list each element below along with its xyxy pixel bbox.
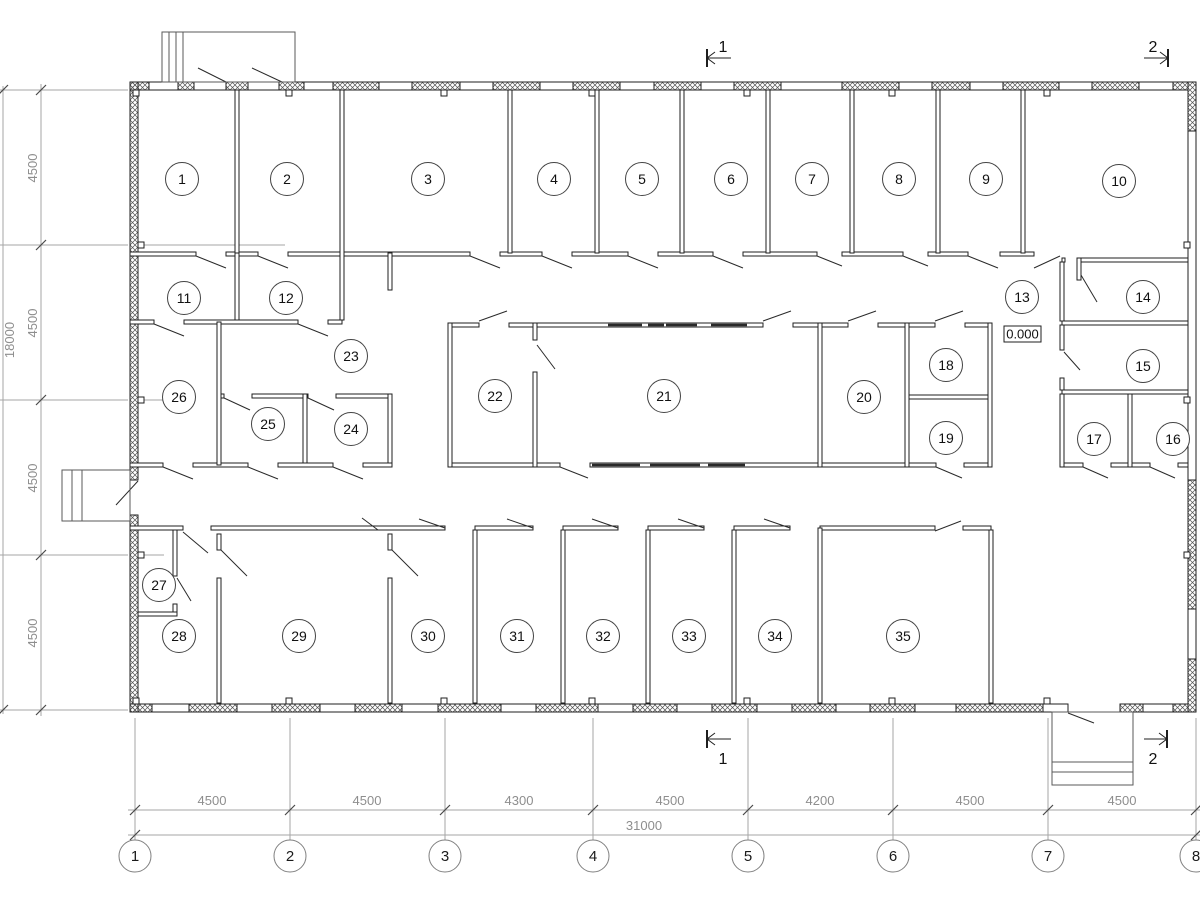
wall-segment: [235, 90, 239, 253]
wall-segment: [595, 90, 599, 253]
door-leaf: [221, 550, 247, 576]
exterior-wall-pier: [1188, 659, 1196, 712]
room-number: 21: [656, 388, 672, 404]
wall-segment: [130, 463, 163, 467]
door-leaf: [116, 481, 138, 505]
room-number: 17: [1086, 431, 1102, 447]
room-number: 25: [260, 416, 276, 432]
exterior-wall-pier: [355, 704, 402, 712]
door-leaf: [252, 68, 282, 82]
elevation-label: 0.000: [1006, 327, 1039, 342]
wall-segment: [1077, 258, 1081, 280]
exterior-wall-pier: [573, 82, 620, 90]
dimension-total-label: 31000: [626, 818, 662, 833]
door-leaf: [198, 68, 226, 82]
wall-segment: [450, 323, 479, 327]
dimension-label: 4300: [505, 793, 534, 808]
door-leaf: [183, 532, 208, 553]
door-leaf: [1068, 713, 1094, 723]
door-leaf: [1064, 352, 1080, 370]
door-leaf: [308, 398, 334, 410]
door-leaf: [903, 256, 928, 266]
wall-segment: [508, 90, 512, 253]
wall-segment: [646, 530, 650, 703]
wall-segment: [988, 323, 992, 467]
room-number: 29: [291, 628, 307, 644]
wall-segment: [964, 463, 990, 467]
room-number: 22: [487, 388, 503, 404]
section-number: 1: [719, 751, 728, 768]
wall-segment: [278, 463, 333, 467]
exterior-wall-pier: [1003, 82, 1059, 90]
exterior-wall-pier: [870, 704, 915, 712]
grid-intersection-marker: [1184, 397, 1190, 403]
door-leaf: [470, 256, 500, 268]
entrance-porch-top: [162, 32, 295, 82]
wall-segment: [658, 252, 713, 256]
exterior-wall-pier: [1120, 704, 1143, 712]
door-leaf: [935, 521, 961, 531]
exterior-wall-pier: [792, 704, 836, 712]
wall-segment: [500, 252, 542, 256]
exterior-wall-pier: [493, 82, 540, 90]
grid-intersection-marker: [1044, 90, 1050, 96]
door-leaf: [1034, 256, 1060, 268]
room-number: 23: [343, 348, 359, 364]
door-leaf: [763, 311, 791, 321]
grid-intersection-marker: [1044, 698, 1050, 704]
wall-segment: [217, 322, 221, 465]
wall-segment: [288, 252, 470, 256]
grid-intersection-marker: [889, 698, 895, 704]
wall-segment: [388, 578, 392, 703]
exterior-wall-pier: [536, 704, 598, 712]
room-number: 18: [938, 357, 954, 373]
door-leaf: [248, 467, 278, 479]
room-number: 6: [727, 171, 735, 187]
exterior-wall-pier: [842, 82, 899, 90]
dimension-label: 4500: [25, 464, 40, 493]
section-number: 2: [1149, 39, 1158, 56]
room-number: 20: [856, 389, 872, 405]
dimension-total-label: 18000: [2, 322, 17, 358]
wall-segment: [965, 323, 990, 327]
grid-bubble-number: 5: [744, 848, 752, 865]
door-leaf: [628, 256, 658, 268]
door-leaf: [163, 467, 193, 479]
exterior-wall-pier: [226, 82, 248, 90]
door-leaf: [479, 311, 507, 321]
room-number: 16: [1165, 431, 1181, 447]
room-number: 35: [895, 628, 911, 644]
exterior-wall-left-lower: [130, 515, 138, 712]
grid-intersection-marker: [441, 90, 447, 96]
grid-intersection-marker: [133, 698, 139, 704]
grid-intersection-marker: [589, 698, 595, 704]
section-number: 2: [1149, 751, 1158, 768]
exterior-wall-pier: [438, 704, 501, 712]
room-number: 33: [681, 628, 697, 644]
dimension-label: 4500: [25, 619, 40, 648]
wall-segment: [1000, 252, 1034, 256]
wall-segment: [1060, 394, 1064, 467]
door-leaf: [258, 256, 288, 268]
door-leaf: [936, 467, 962, 478]
grid-intersection-marker: [138, 397, 144, 403]
wall-segment: [211, 526, 445, 530]
grid-bubble-number: 7: [1044, 848, 1052, 865]
grid-intersection-marker: [744, 698, 750, 704]
dimension-label: 4500: [25, 154, 40, 183]
door-leaf: [542, 256, 572, 268]
grid-intersection-marker: [286, 90, 292, 96]
grid-intersection-marker: [138, 552, 144, 558]
exterior-wall-pier: [189, 704, 237, 712]
wall-segment: [928, 252, 968, 256]
room-number: 13: [1014, 289, 1030, 305]
wall-segment: [680, 90, 684, 253]
wall-segment: [766, 90, 770, 253]
wall-segment: [1021, 90, 1025, 253]
wall-segment: [235, 253, 239, 320]
exterior-wall-pier: [712, 704, 757, 712]
door-leaf: [1081, 275, 1097, 302]
grid-intersection-marker: [1184, 552, 1190, 558]
wall-segment: [563, 526, 618, 530]
dimension-label: 4500: [353, 793, 382, 808]
dimension-label: 4500: [956, 793, 985, 808]
door-leaf: [848, 311, 876, 321]
wall-segment: [226, 252, 258, 256]
dimension-label: 4200: [806, 793, 835, 808]
wall-segment: [818, 323, 822, 467]
door-leaf: [537, 345, 555, 369]
room-number: 15: [1135, 358, 1151, 374]
wall-segment: [475, 526, 533, 530]
wall-segment: [648, 526, 704, 530]
room-numbers: 1 2 3 4 5 6 7 8 9 10 11 12 13 14 15 16 1…: [143, 163, 1190, 653]
exterior-wall-pier: [333, 82, 379, 90]
wall-segment: [1062, 258, 1065, 262]
grid-intersection-marker: [889, 90, 895, 96]
wall-segment: [1060, 378, 1064, 390]
dimension-label: 4500: [198, 793, 227, 808]
wall-segment: [1060, 325, 1064, 350]
exterior-wall-pier: [279, 82, 304, 90]
wall-segment: [184, 320, 298, 324]
exterior-wall-bottom: [130, 704, 1068, 712]
wall-segment: [1062, 321, 1188, 325]
room-number: 19: [938, 430, 954, 446]
room-number: 34: [767, 628, 783, 644]
door-leaf: [560, 467, 588, 478]
room-number: 3: [424, 171, 432, 187]
exterior-wall-pier: [412, 82, 460, 90]
dimension-label: 4500: [25, 309, 40, 338]
grid-intersection-marker: [138, 242, 144, 248]
room-number: 12: [278, 290, 294, 306]
grid-intersection-marker: [286, 698, 292, 704]
grid-intersection-marker: [1184, 242, 1190, 248]
room-number: 4: [550, 171, 558, 187]
door-leaf: [1150, 467, 1175, 478]
door-leaf: [1083, 467, 1108, 478]
exterior-wall-pier: [1092, 82, 1139, 90]
door-leaf: [392, 550, 418, 576]
wall-segment: [533, 323, 537, 340]
grid-bubble-number: 2: [286, 848, 294, 865]
door-leaf: [817, 256, 842, 266]
room-number: 28: [171, 628, 187, 644]
exterior-wall-pier: [932, 82, 970, 90]
grid-bubble-number: 6: [889, 848, 897, 865]
room-number: 14: [1135, 289, 1151, 305]
wall-segment: [336, 394, 392, 398]
room-number: 5: [638, 171, 646, 187]
door-leaf: [196, 256, 226, 268]
wall-segment: [328, 320, 342, 324]
door-leaf: [154, 324, 184, 336]
wall-segment: [818, 528, 822, 703]
wall-segment: [1079, 258, 1188, 262]
room-number: 31: [509, 628, 525, 644]
door-leaf: [968, 256, 998, 268]
room-number: 2: [283, 171, 291, 187]
exterior-wall-pier: [1188, 82, 1196, 131]
floor-plan-drawing: 0.000 1 2 1 2 1 2 3 4 5 6 7 8 9 10 11 12…: [0, 0, 1200, 900]
wall-segment: [989, 530, 993, 703]
door-leaf: [713, 256, 743, 268]
room-number: 7: [808, 171, 816, 187]
wall-segment: [561, 530, 565, 703]
grid-axis-bubbles: 1 2 3 4 5 6 7 8: [119, 840, 1200, 872]
grid-intersection-marker: [133, 90, 139, 96]
exterior-wall-pier: [272, 704, 320, 712]
section-number: 1: [719, 39, 728, 56]
wall-segment: [388, 253, 392, 290]
wall-segment: [138, 612, 177, 616]
grid-bubble-number: 1: [131, 848, 139, 865]
wall-segment: [743, 252, 817, 256]
wall-segment: [173, 604, 177, 612]
room-number: 24: [343, 421, 359, 437]
room-number: 32: [595, 628, 611, 644]
dimension-label: 4500: [1108, 793, 1137, 808]
room-number: 8: [895, 171, 903, 187]
grid-bubble-number: 8: [1192, 848, 1200, 865]
wall-segment: [450, 463, 560, 467]
grid-bubble-number: 4: [589, 848, 597, 865]
wall-segment: [732, 530, 736, 703]
wall-segment: [1178, 463, 1188, 467]
wall-segment: [252, 394, 308, 398]
exterior-wall-pier: [734, 82, 781, 90]
wall-segment: [130, 526, 183, 530]
wall-segment: [217, 534, 221, 550]
exterior-wall-pier: [178, 82, 194, 90]
wall-segment: [130, 252, 196, 256]
wall-segment: [533, 372, 537, 467]
construction-lines: [0, 84, 1200, 840]
elevation-mark: 0.000: [1004, 326, 1041, 342]
wall-segment: [473, 530, 477, 703]
grid-bubble-number: 3: [441, 848, 449, 865]
exterior-wall-pier: [633, 704, 677, 712]
room-number: 27: [151, 577, 167, 593]
wall-segment: [936, 90, 940, 253]
wall-segment: [173, 530, 177, 576]
wall-segment: [217, 578, 221, 703]
wall-segment: [1062, 463, 1083, 467]
room-number: 1: [178, 171, 186, 187]
door-leaf: [935, 311, 963, 321]
wall-segment: [734, 526, 790, 530]
door-leaf: [298, 324, 328, 336]
dimension-label: 4500: [656, 793, 685, 808]
exterior-wall-pier: [654, 82, 701, 90]
wall-segment: [1128, 394, 1132, 467]
exterior-wall-pier: [1188, 480, 1196, 609]
wall-segment: [905, 323, 909, 467]
wall-segment: [963, 526, 991, 530]
wall-segment: [448, 323, 452, 467]
room-number: 11: [177, 290, 192, 306]
room-number: 9: [982, 171, 990, 187]
wall-segment: [388, 534, 392, 550]
door-leaf: [224, 398, 250, 410]
room-number: 30: [420, 628, 436, 644]
wall-segment: [130, 320, 154, 324]
door-leaf: [177, 578, 191, 601]
wall-segment: [388, 394, 392, 463]
wall-segment: [820, 526, 935, 530]
wall-segment: [572, 252, 628, 256]
door-leaf: [333, 467, 363, 479]
wall-segment: [1062, 390, 1188, 394]
exterior-wall-pier: [956, 704, 1043, 712]
wall-segment: [590, 463, 936, 467]
grid-intersection-marker: [744, 90, 750, 96]
wall-segment: [363, 463, 392, 467]
wall-segment: [340, 90, 344, 320]
wall-segment: [303, 394, 307, 463]
wall-segment: [1060, 262, 1064, 321]
room-number: 26: [171, 389, 187, 405]
grid-intersection-marker: [441, 698, 447, 704]
room-number: 10: [1111, 173, 1127, 189]
wall-segment: [909, 395, 988, 399]
wall-segment: [850, 90, 854, 253]
grid-intersection-marker: [589, 90, 595, 96]
exterior-wall-left-upper: [130, 82, 138, 480]
